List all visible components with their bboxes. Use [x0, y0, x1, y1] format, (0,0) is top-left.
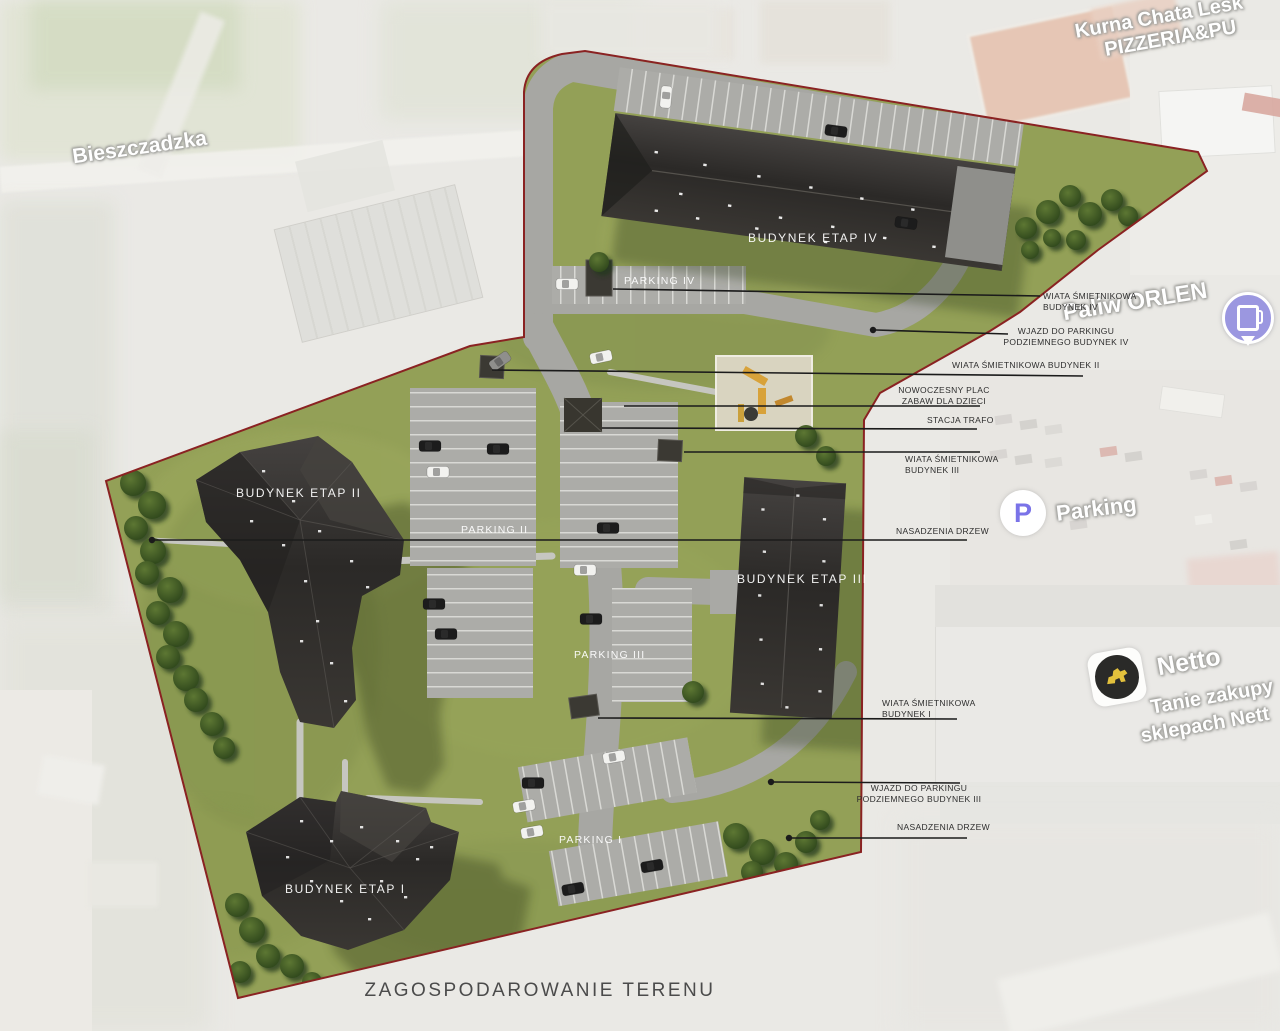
annotation-nasadzenia-drzew-poludnie: NASADZENIA DRZEW — [897, 822, 990, 833]
annotation-wiata-smietnikowa-budynek-1: WIATA ŚMIETNIKOWABUDYNEK I — [882, 698, 976, 720]
annotation-wiata-smietnikowa-budynek-2: WIATA ŚMIETNIKOWA BUDYNEK II — [952, 360, 1100, 371]
building-4-label: BUDYNEK ETAP IV — [748, 231, 878, 245]
annotation-wjazd-parking-podziemny-budynek-4: WJAZD DO PARKINGUPODZIEMNEGO BUDYNEK IV — [991, 326, 1141, 348]
annotation-stacja-trafo: STACJA TRAFO — [927, 415, 994, 426]
building-2-label: BUDYNEK ETAP II — [236, 486, 362, 500]
parking-2-label: PARKING II — [461, 524, 528, 536]
annotation-plac-zabaw: NOWOCZESNY PLACZABAW DLA DZIECI — [869, 385, 1019, 407]
parking-4-label: PARKING IV — [624, 275, 695, 287]
building-1-label: BUDYNEK ETAP I — [285, 882, 406, 896]
annotation-wiata-smietnikowa-budynek-3: WIATA ŚMIETNIKOWABUDYNEK III — [905, 454, 999, 476]
building-3-label: BUDYNEK ETAP III — [737, 572, 868, 586]
site-plan-canvas: { "title": "ZAGOSPODAROWANIE TERENU", "p… — [0, 0, 1280, 1031]
annotation-wjazd-parking-podziemny-budynek-3: WJAZD DO PARKINGUPODZIEMNEGO BUDYNEK III — [844, 783, 994, 805]
drawing-title: ZAGOSPODAROWANIE TERENU — [310, 980, 770, 1002]
annotation-wiata-smietnikowa-budynek-4: WIATA ŚMIETNIKOWABUDYNEK IV — [1043, 291, 1137, 313]
annotation-nasadzenia-drzew-polnoc: NASADZENIA DRZEW — [896, 526, 989, 537]
parking-1-label: PARKING I — [559, 834, 622, 846]
parking-3-label: PARKING III — [574, 649, 645, 661]
